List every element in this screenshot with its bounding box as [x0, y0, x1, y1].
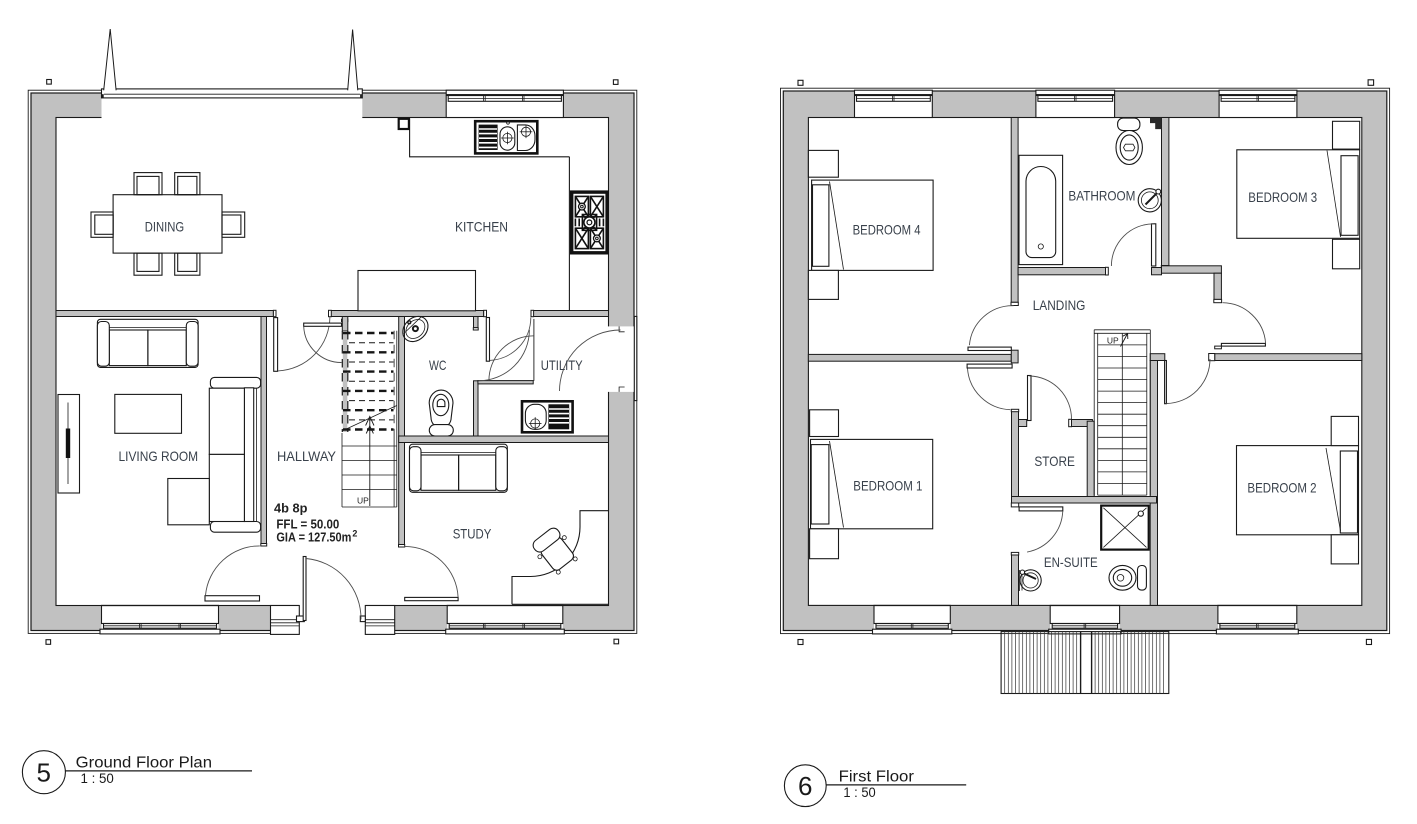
svg-text:GIA = 127.50m: GIA = 127.50m — [276, 530, 351, 545]
svg-text:HALLWAY: HALLWAY — [277, 448, 337, 464]
svg-text:EN-SUITE: EN-SUITE — [1044, 554, 1098, 570]
svg-text:BEDROOM 2: BEDROOM 2 — [1247, 479, 1316, 495]
svg-text:KITCHEN: KITCHEN — [455, 218, 508, 234]
svg-text:STUDY: STUDY — [453, 525, 492, 541]
svg-text:BEDROOM 4: BEDROOM 4 — [853, 221, 921, 237]
svg-text:BEDROOM 3: BEDROOM 3 — [1248, 189, 1317, 205]
svg-text:1 : 50: 1 : 50 — [843, 785, 875, 800]
svg-text:WC: WC — [429, 357, 446, 373]
svg-text:UP: UP — [1107, 335, 1119, 345]
svg-text:LANDING: LANDING — [1033, 297, 1086, 313]
svg-text:LIVING ROOM: LIVING ROOM — [119, 448, 199, 464]
svg-text:Ground Floor Plan: Ground Floor Plan — [76, 754, 212, 771]
svg-text:UP: UP — [357, 496, 369, 506]
svg-text:BEDROOM 1: BEDROOM 1 — [853, 478, 922, 494]
svg-text:4b 8p: 4b 8p — [274, 501, 307, 516]
svg-text:First Floor: First Floor — [839, 768, 914, 785]
svg-text:BATHROOM: BATHROOM — [1068, 188, 1135, 204]
svg-text:5: 5 — [37, 758, 51, 788]
svg-text:2: 2 — [352, 529, 357, 539]
svg-text:DINING: DINING — [145, 218, 184, 234]
svg-text:UTILITY: UTILITY — [541, 357, 583, 373]
svg-text:STORE: STORE — [1034, 453, 1075, 469]
svg-text:6: 6 — [798, 771, 812, 801]
svg-text:1 : 50: 1 : 50 — [81, 771, 114, 786]
